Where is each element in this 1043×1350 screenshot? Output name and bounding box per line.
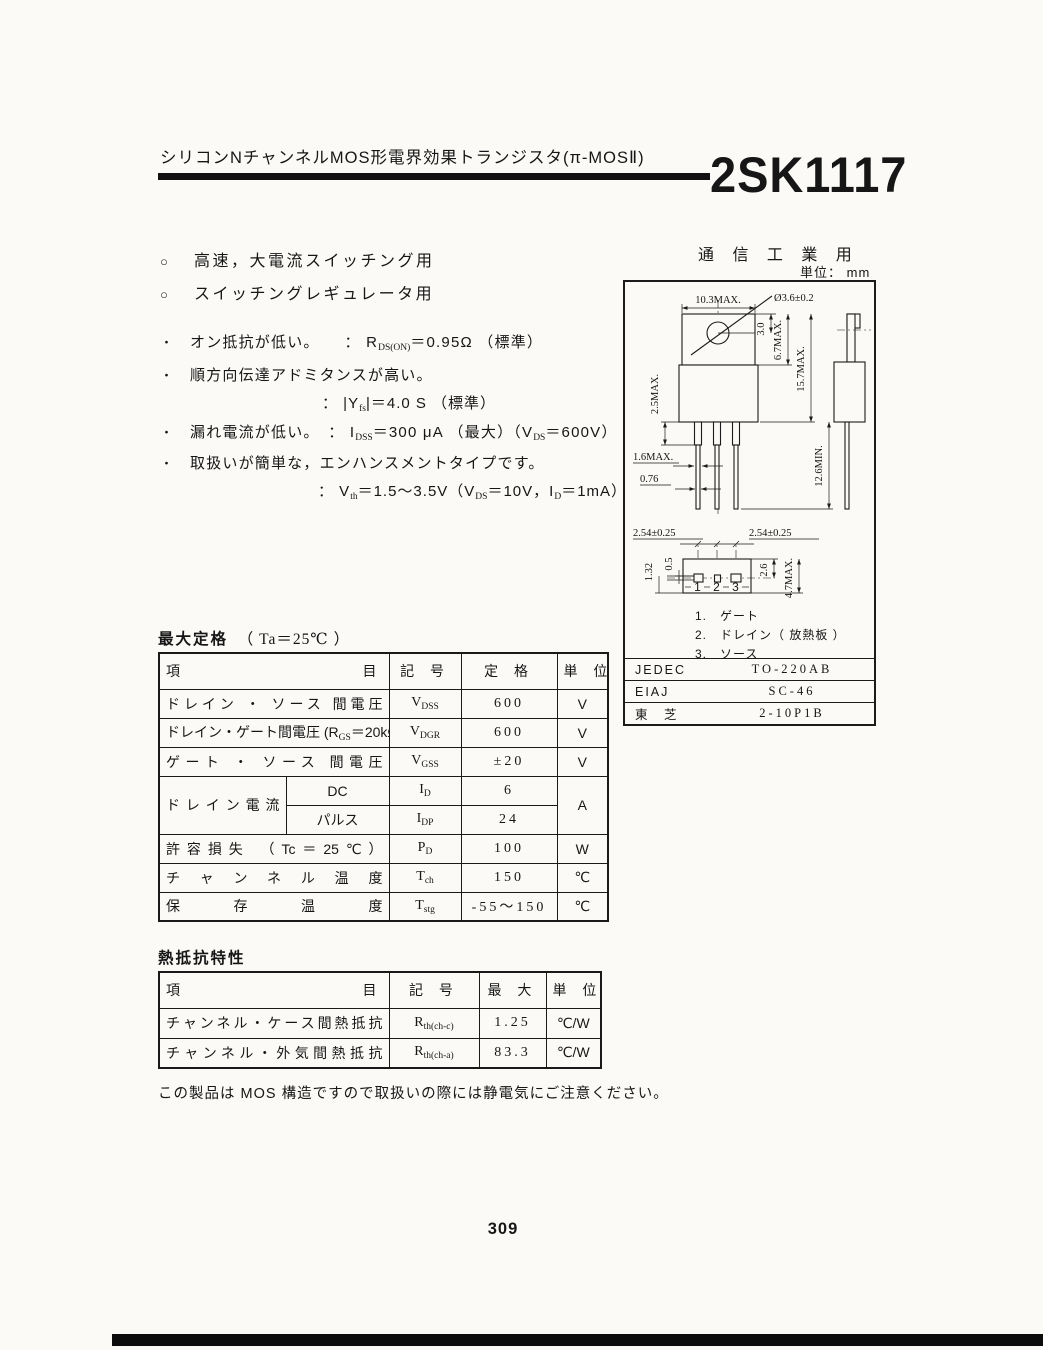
dim-lead-length: 12.6MIN. [814, 445, 825, 486]
dim-lead-width1: 1.6MAX. [633, 452, 673, 463]
feature-item: ・漏れ電流が低い。 ： IDSS＝300 μA （最大）（VDS＝600V） [160, 421, 618, 443]
package-outline-drawing: 10.3MAX. Ø3.6±0.2 3.0 6.7MAX. 15.7MAX. 1… [623, 280, 876, 726]
table-row: 許容損失 （Tc＝25℃） PD 100 W [159, 834, 608, 863]
circle-bullet-icon: ○ [160, 254, 194, 269]
dim-bv-offset1: 0.5 [664, 557, 675, 570]
dim-hole-offset: 3.0 [756, 322, 767, 335]
column-header: 記 号 [389, 972, 479, 1008]
table-row: 保存温度 Tstg -55～150 ℃ [159, 892, 608, 921]
column-header: 記 号 [389, 653, 461, 689]
table-row: チャンネル・外気間熱抵抗 Rth(ch-a) 83.3 ℃/W [159, 1038, 601, 1068]
package-standard: EIAJ [635, 685, 720, 699]
dim-shoulder: 2.5MAX. [650, 374, 661, 414]
feature-item: ・順方向伝達アドミタンスが高い。 [160, 364, 433, 385]
table-row: チャンネル・ケース間熱抵抗 Rth(ch-c) 1.25 ℃/W [159, 1008, 601, 1038]
dim-body-height: 15.7MAX. [796, 346, 807, 392]
max-ratings-table: 項 目 記 号 定 格 単 位 ドレイン ・ ソース 間電圧 VDSS 600 … [158, 652, 609, 922]
to220-outline-svg: 10.3MAX. Ø3.6±0.2 3.0 6.7MAX. 15.7MAX. 1… [625, 282, 874, 659]
feature-formula: ： |Yfs|＝4.0 S （標準） [322, 392, 496, 414]
column-header: 項 目 [159, 972, 389, 1008]
package-standard: JEDEC [635, 663, 720, 677]
dot-bullet-icon: ・ [160, 422, 190, 441]
dim-bv-depth1: 2.6 [759, 563, 770, 576]
dim-bv-offset2: 1.32 [644, 563, 655, 581]
package-code: TO-220AB [720, 662, 864, 677]
package-code: SC-46 [720, 684, 864, 699]
table-row: ドレイン・ゲート間電圧 (RGS＝20kΩ) VDGR 600 V [159, 718, 608, 747]
scan-artifact-bar [112, 1334, 1043, 1346]
unit-label: 単位： mm [800, 262, 870, 281]
max-ratings-title: 最大定格 （ Ta＝25℃ ） [158, 627, 350, 649]
thermal-table: 項 目 記 号 最 大 単 位 チャンネル・ケース間熱抵抗 Rth(ch-c) … [158, 971, 602, 1069]
feature-item: ・オン抵抗が低い。 ： RDS(ON)＝0.95Ω （標準） [160, 331, 543, 353]
dim-bv-depth2: 4.7MAX. [784, 558, 795, 598]
dim-pitch-left: 2.54±0.25 [633, 528, 676, 539]
page-number: 309 [443, 1220, 563, 1239]
esd-caution-note: この製品は MOS 構造ですので取扱いの際には静電気にご注意ください。 [158, 1082, 669, 1103]
table-row: ドレイン ・ ソース 間電圧 VDSS 600 V [159, 689, 608, 718]
pin-legend-drain: 2. ドレイン（ 放熱板 ） [695, 627, 846, 642]
dim-pitch-right: 2.54±0.25 [749, 528, 792, 539]
column-header: 項 目 [159, 653, 389, 689]
column-header: 定 格 [461, 653, 557, 689]
document-title: シリコンNチャンネルMOS形電界効果トランジスタ(π-MOSⅡ) [160, 144, 645, 168]
table-row: 東 芝 2-10P1B [625, 702, 874, 724]
package-standard: 東 芝 [635, 704, 720, 723]
dot-bullet-icon: ・ [160, 332, 190, 351]
application-item: ○高速，大電流スイッチング用 [160, 247, 435, 271]
dim-lead-width2: 0.76 [640, 474, 658, 485]
circle-bullet-icon: ○ [160, 287, 194, 302]
pin-number: 1 [694, 580, 702, 594]
dot-bullet-icon: ・ [160, 365, 190, 384]
pin-number: 3 [732, 580, 740, 594]
pin-number: 2 [713, 580, 721, 594]
dim-top-width: 10.3MAX. [695, 295, 741, 306]
table-row: ドレイン電流 DC ID 6 A [159, 776, 608, 805]
table-row: ゲート ・ ソース 間電圧 VGSS ±20 V [159, 747, 608, 776]
dim-tab-height: 6.7MAX. [773, 320, 784, 360]
column-header: 単 位 [557, 653, 608, 689]
part-number: 2SK1117 [710, 146, 907, 204]
table-row: JEDEC TO-220AB [625, 658, 874, 680]
title-rule [158, 173, 710, 180]
table-row: EIAJ SC-46 [625, 680, 874, 702]
table-row: チャンネル温度 Tch 150 ℃ [159, 863, 608, 892]
thermal-title: 熱抵抗特性 [158, 946, 246, 968]
dot-bullet-icon: ・ [160, 453, 190, 472]
dim-hole-dia: Ø3.6±0.2 [774, 293, 814, 304]
package-code: 2-10P1B [720, 706, 864, 721]
datasheet-page: シリコンNチャンネルMOS形電界効果トランジスタ(π-MOSⅡ) 2SK1117… [0, 0, 1043, 1350]
package-code-table: JEDEC TO-220AB EIAJ SC-46 東 芝 2-10P1B [625, 658, 874, 724]
column-header: 単 位 [546, 972, 601, 1008]
pin-legend-gate: 1. ゲート [695, 609, 759, 623]
feature-formula: ： Vth＝1.5～3.5V（VDS＝10V，ID＝1mA） [318, 480, 627, 502]
column-header: 最 大 [479, 972, 546, 1008]
application-item: ○スイッチングレギュレータ用 [160, 280, 434, 304]
feature-item: ・取扱いが簡単な，エンハンスメントタイプです。 [160, 452, 545, 473]
